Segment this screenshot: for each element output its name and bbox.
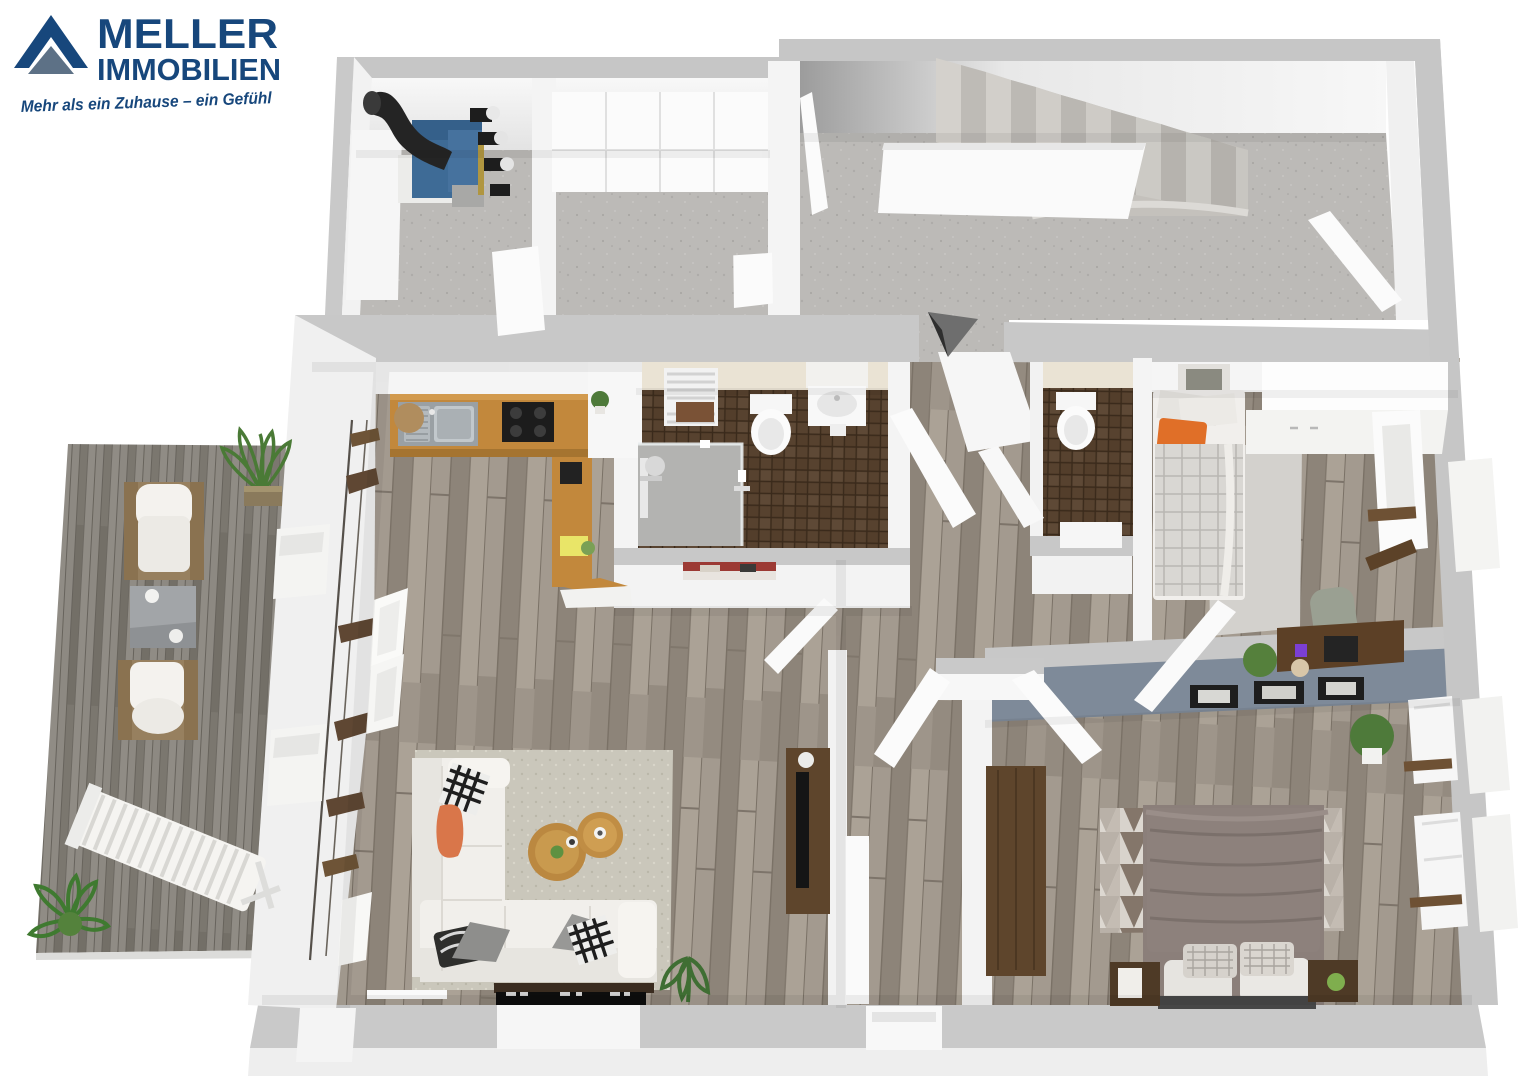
- svg-text:MELLER: MELLER: [97, 10, 278, 57]
- svg-text:IMMOBILIEN: IMMOBILIEN: [97, 52, 281, 87]
